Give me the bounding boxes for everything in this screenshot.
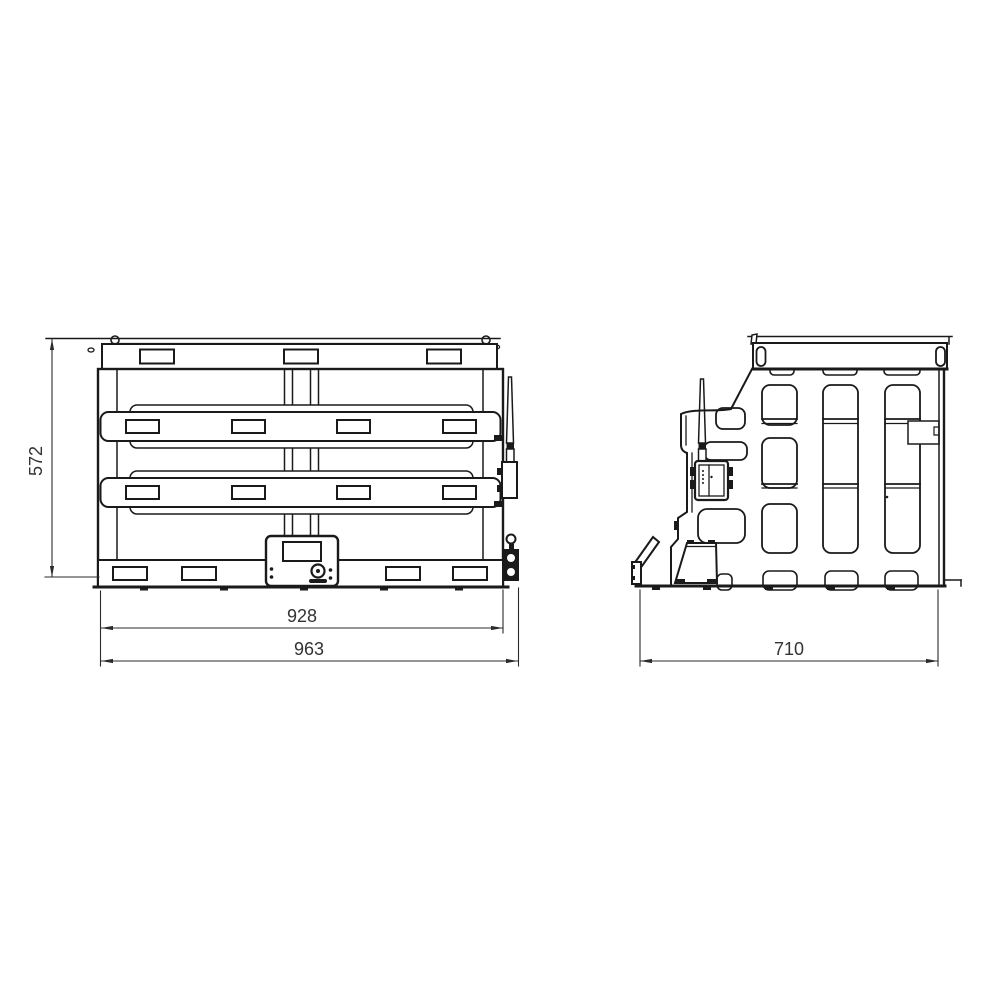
dim-height-label: 572: [26, 446, 46, 476]
camera-knob-icon: [309, 565, 327, 584]
front-slat-2: [101, 471, 503, 514]
drawing-svg: 572 928 963 710: [0, 0, 1000, 1000]
dim-side-width-label: 710: [774, 639, 804, 659]
side-view: [631, 334, 961, 590]
front-top-bar: [102, 344, 497, 369]
side-panel-right-edge: [939, 369, 944, 586]
side-control-box: [690, 461, 733, 500]
side-antenna: [699, 379, 707, 462]
side-panel-column-2: [823, 385, 858, 553]
front-slat-1: [101, 405, 503, 448]
side-base-pedestal: [675, 540, 717, 583]
front-receiver-box: [502, 462, 517, 498]
technical-drawing-canvas: 572 928 963 710: [0, 0, 1000, 1000]
dim-inner-width-label: 928: [287, 606, 317, 626]
dim-height-572: [45, 339, 99, 577]
side-panel-column-3: [885, 385, 939, 553]
dim-overall-width-label: 963: [294, 639, 324, 659]
front-hinge-bracket: [503, 535, 519, 582]
side-top-bar: [748, 334, 952, 369]
side-wedge-flap: [631, 537, 659, 584]
side-panel-column-1: [762, 385, 797, 553]
front-control-panel: [266, 536, 338, 586]
front-view: [46, 336, 519, 591]
